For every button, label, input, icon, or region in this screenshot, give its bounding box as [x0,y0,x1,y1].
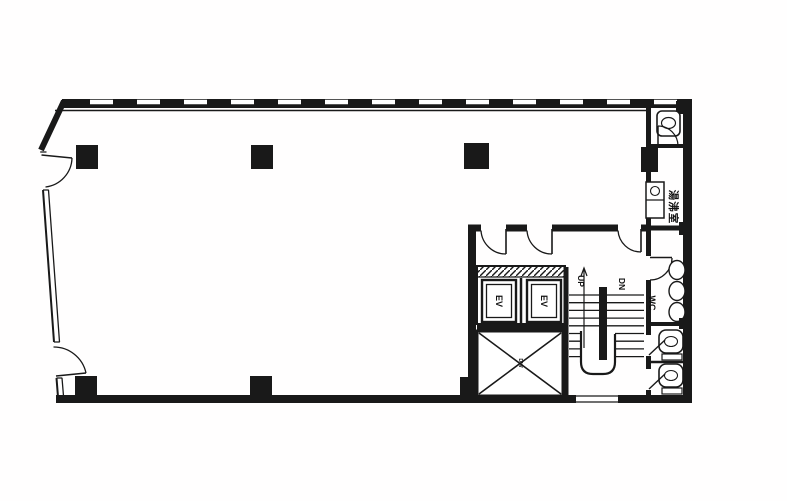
staircase: UP DN [569,268,644,375]
kitchenette-label: 湯沸室 [667,190,680,225]
toilet-seat-oval [665,371,678,381]
door-swing-arc [54,347,87,373]
column [76,145,98,169]
urinal-fixture [669,282,685,301]
floor-plan-drawing: EV EV DW UP DN [0,0,787,501]
elevator-shaft: EV EV [477,266,565,324]
columns [75,143,489,400]
core-left-wall [468,225,476,399]
door-swing-arc [618,231,641,253]
duct-shaft [641,147,658,172]
floor-plan-canvas: EV EV DW UP DN [0,0,787,501]
column [250,376,272,399]
kitchenette: 湯沸室 [646,182,680,224]
door-left-bottom [54,347,87,376]
toilet-tank [662,388,682,394]
column [251,145,273,169]
dumbwaiter-label: DW [517,358,523,368]
stairs-down-label: DN [617,278,627,290]
stairs-up-label: UP [576,275,586,287]
dumbwaiter-shaft: DW [477,331,563,396]
shaft-hatch [478,267,564,277]
door-left-top [42,155,73,187]
elevator-label: EV [494,295,504,307]
door-core-left [481,229,506,254]
top-room-fixture [657,111,680,136]
elevator-label: EV [539,295,549,307]
wall-junction-block [679,318,692,329]
chamfer-wall [41,101,64,150]
door-leaf [56,373,86,376]
toilet-fixture [659,364,683,394]
stair-landing-mask [581,331,615,375]
door-core-right [618,229,641,252]
wall-junction-block [679,222,692,235]
toilet-seat-oval [665,337,678,347]
door-swing-arc [481,231,506,255]
urinal-fixture [669,261,685,280]
door-swing-arc [46,158,73,187]
column [464,143,489,169]
door-leaf [42,155,73,158]
toilet-tank [662,354,682,360]
wc-label: WC [647,296,657,311]
column [75,376,97,399]
door-swing-arc [527,231,552,255]
sink-icon [651,187,660,196]
toilet-fixture [659,330,683,360]
door-core-middle [527,229,552,254]
stair-center-wall [599,287,607,360]
